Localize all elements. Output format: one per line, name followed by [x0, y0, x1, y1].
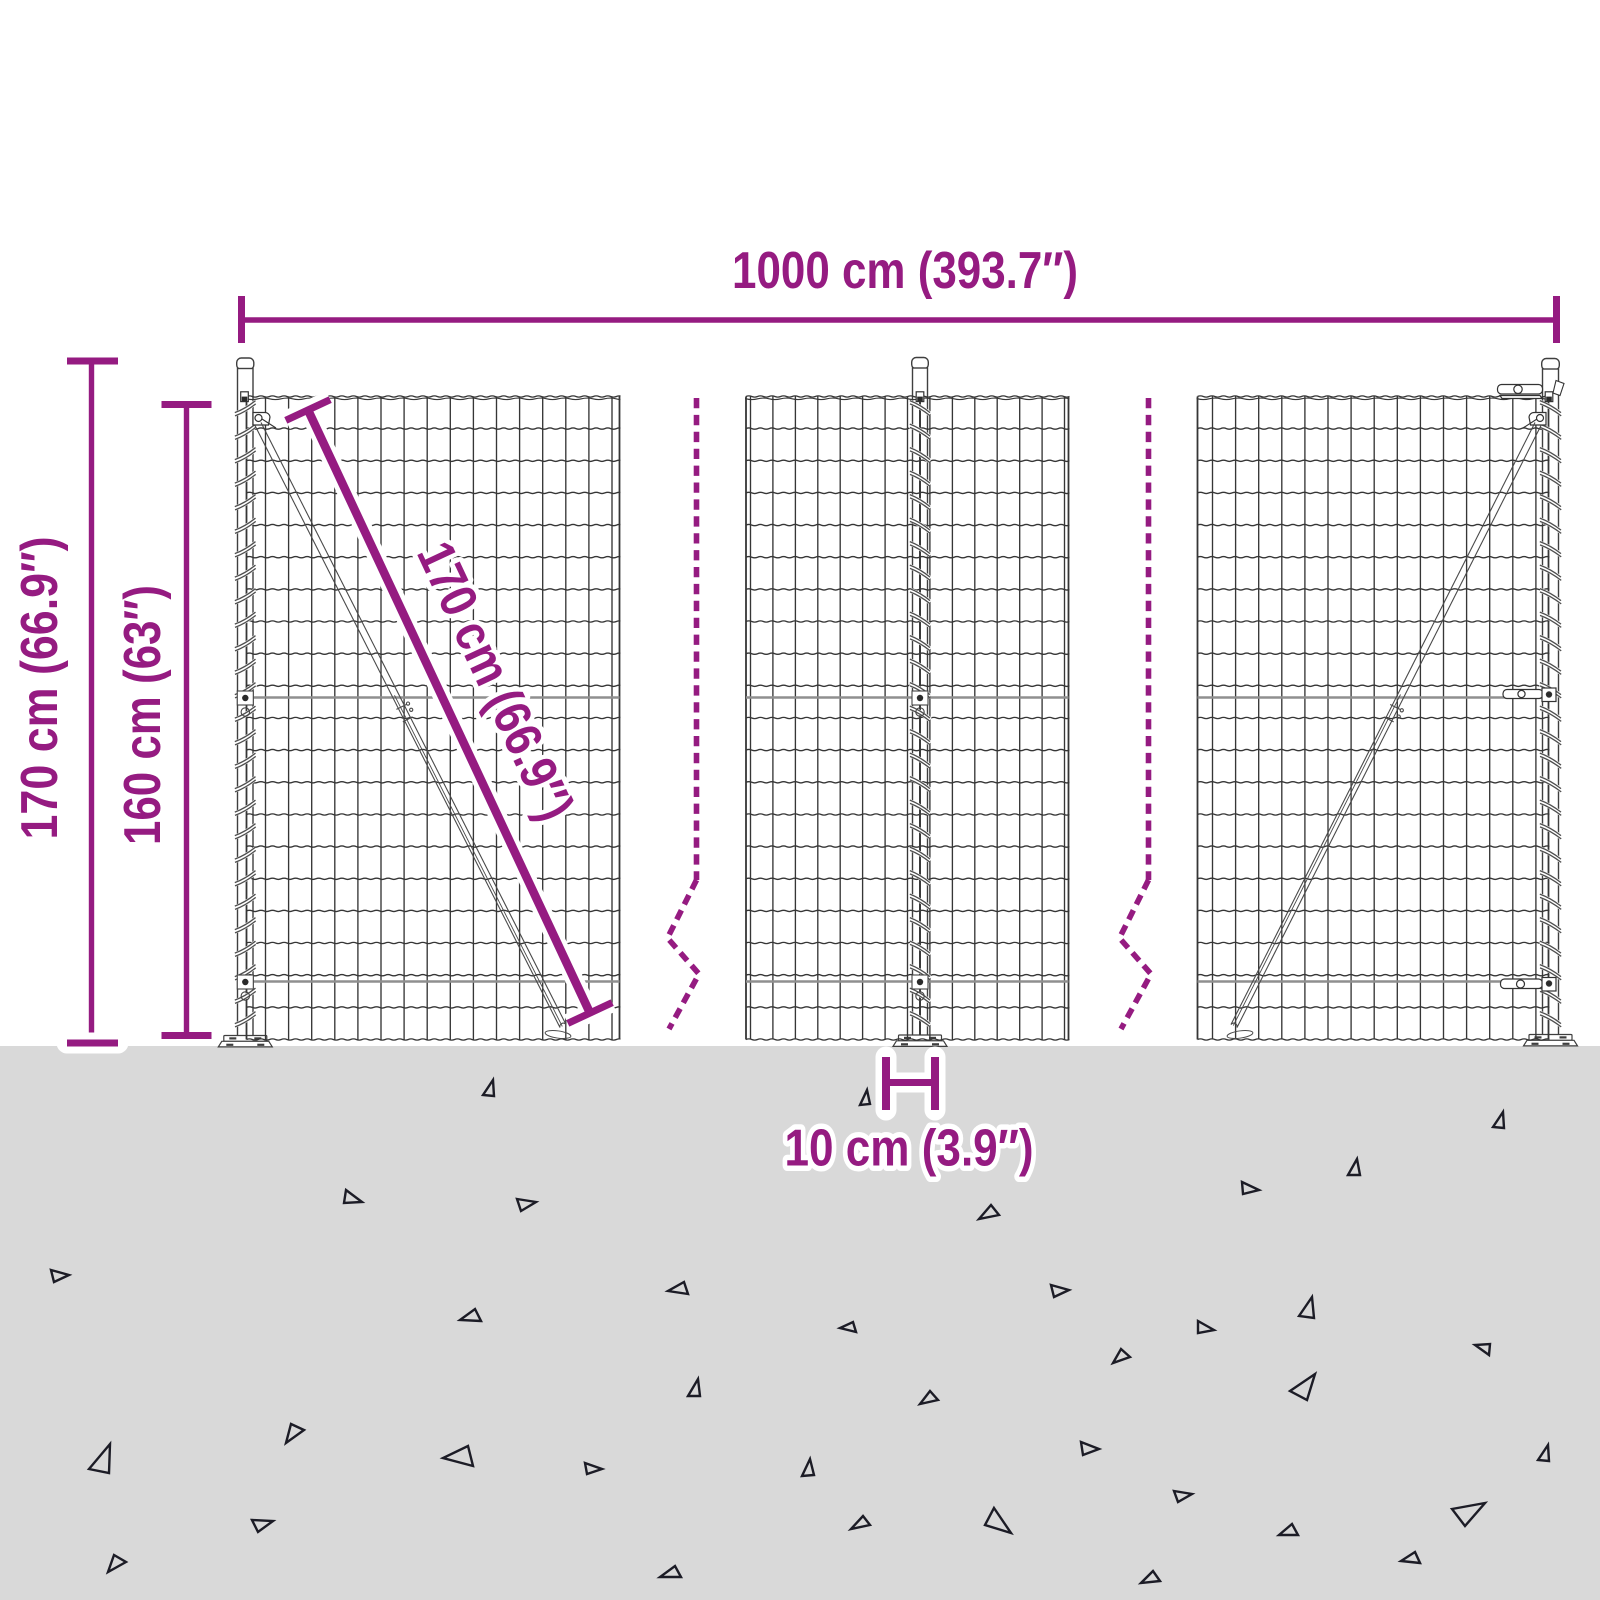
svg-text:1000 cm (393.7″): 1000 cm (393.7″) — [732, 242, 1078, 300]
svg-text:160 cm (63″): 160 cm (63″) — [114, 585, 172, 845]
svg-text:170 cm (66.9″): 170 cm (66.9″) — [11, 537, 69, 840]
svg-text:10 cm (3.9″): 10 cm (3.9″) — [785, 1120, 1034, 1178]
